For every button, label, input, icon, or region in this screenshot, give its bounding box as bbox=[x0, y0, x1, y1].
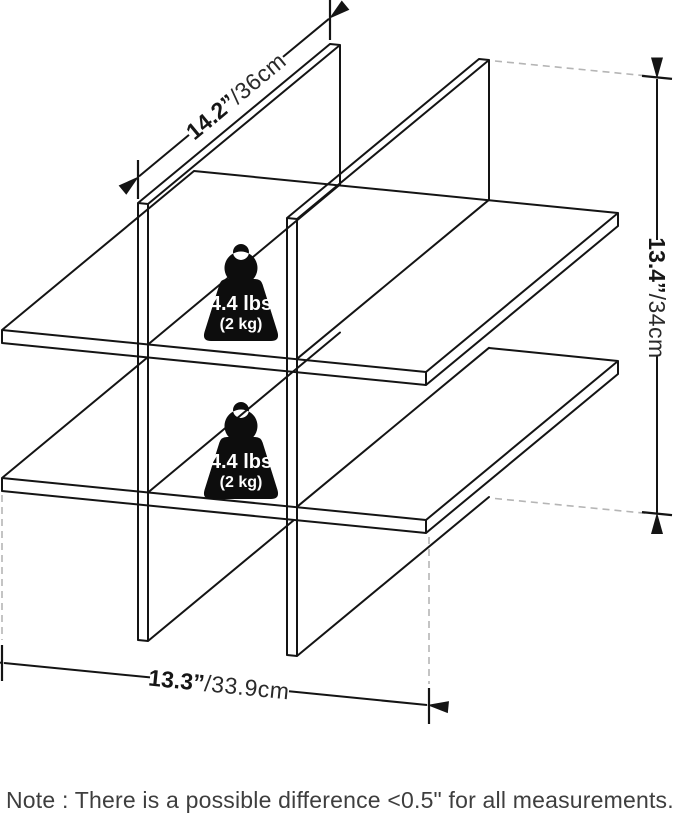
dimension-width: 13.3”/33.9cm bbox=[2, 645, 429, 724]
shelf-unit bbox=[2, 44, 618, 656]
weight-kg-label: (2 kg) bbox=[220, 474, 263, 491]
dimension-height: 13.4”/34cm bbox=[642, 76, 672, 515]
dimension-depth: 14.2”/36cm bbox=[138, 0, 330, 199]
weight-kg-label: (2 kg) bbox=[220, 316, 263, 333]
weight-capacity-badge-bottom: 4.4 lbs (2 kg) bbox=[204, 402, 278, 499]
width-dimension-label: 13.3”/33.9cm bbox=[147, 665, 290, 705]
height-tick-top bbox=[642, 76, 672, 79]
top-shelf bbox=[2, 171, 618, 385]
height-tick-bottom bbox=[642, 512, 672, 515]
left-divider-panel bbox=[138, 44, 340, 641]
product-dimension-diagram: 14.2”/36cm 13.4”/34cm 13.3”/33.9cm 4.4 l… bbox=[0, 0, 679, 822]
weight-lbs-label: 4.4 lbs bbox=[210, 293, 272, 315]
dashed-extension-lines bbox=[2, 61, 648, 684]
measurement-note: Note : There is a possible difference <0… bbox=[6, 787, 678, 814]
weight-lbs-label: 4.4 lbs bbox=[210, 451, 272, 473]
shelf-unit-drawing: 14.2”/36cm 13.4”/34cm 13.3”/33.9cm 4.4 l… bbox=[0, 0, 679, 822]
extension-line-height-bottom bbox=[495, 499, 648, 514]
width-arrow-line-right bbox=[289, 691, 427, 705]
height-dimension-label: 13.4”/34cm bbox=[644, 237, 670, 358]
depth-arrow-line-front bbox=[139, 135, 189, 177]
width-arrow-line-left bbox=[4, 663, 150, 677]
bottom-shelf bbox=[2, 348, 618, 533]
extension-line-height-top bbox=[495, 61, 648, 76]
weight-capacity-badge-top: 4.4 lbs (2 kg) bbox=[204, 244, 278, 341]
